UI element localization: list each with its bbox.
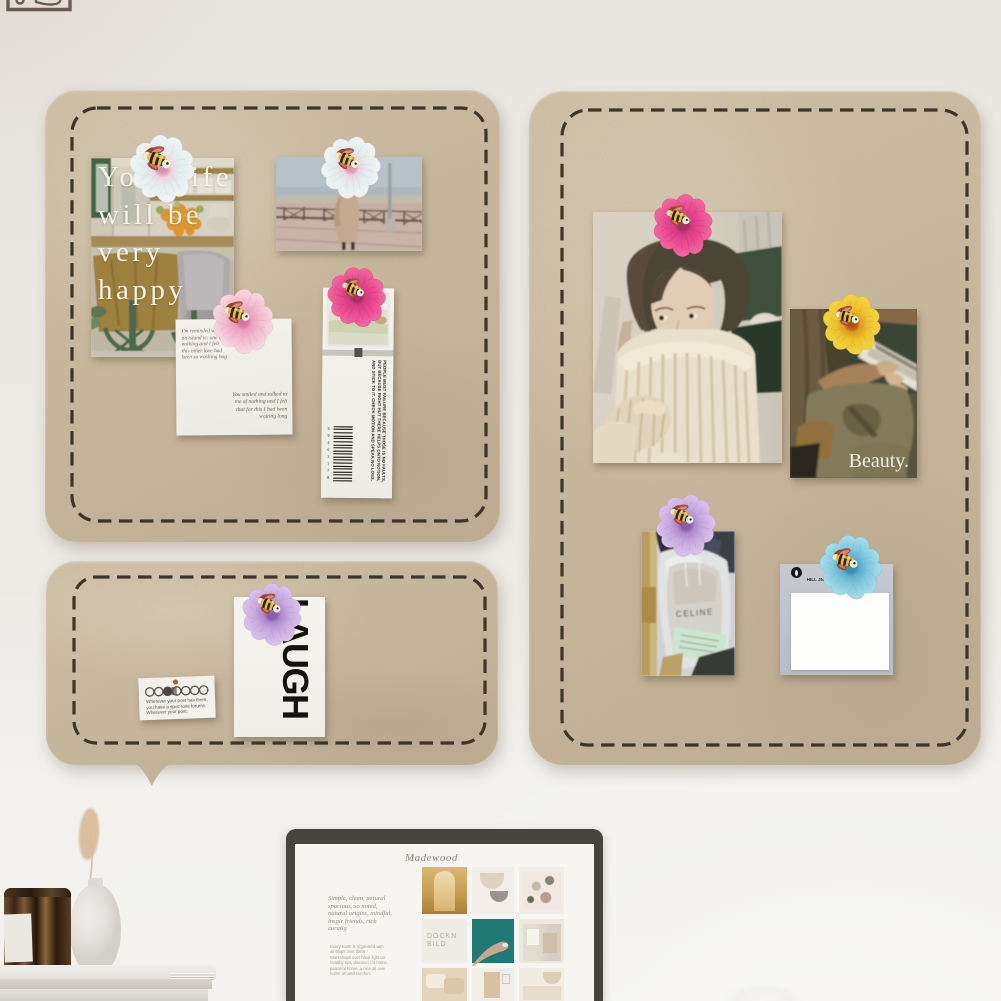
svg-text:5: 5 xyxy=(328,427,330,431)
svg-text:9: 9 xyxy=(328,434,330,438)
svg-text:3: 3 xyxy=(327,455,329,459)
svg-text:4: 4 xyxy=(327,441,329,445)
svg-text:7: 7 xyxy=(327,469,329,473)
svg-text:6: 6 xyxy=(327,448,329,452)
svg-text:8: 8 xyxy=(327,476,329,480)
svg-text:1: 1 xyxy=(327,462,329,466)
